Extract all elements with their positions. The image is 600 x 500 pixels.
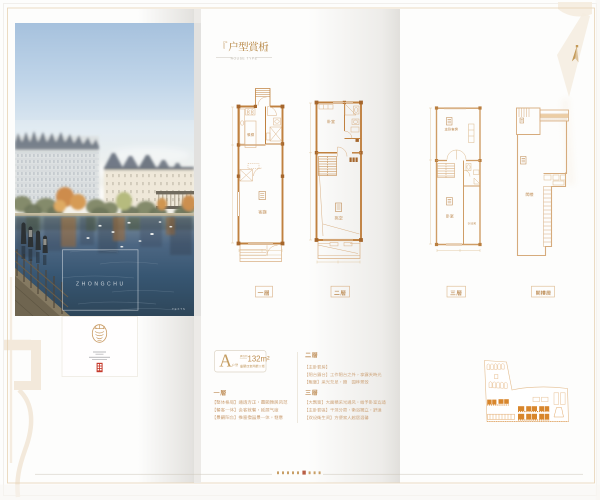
svg-text:A: A [219, 351, 232, 371]
svg-text:132m²: 132m² [248, 355, 271, 364]
svg-text:HOUSE TYPE: HOUSE TYPE [231, 56, 258, 60]
svg-text:ZHONGCHU: ZHONGCHU [76, 282, 126, 288]
svg-text:TEXTS: TEXTS [172, 307, 186, 311]
